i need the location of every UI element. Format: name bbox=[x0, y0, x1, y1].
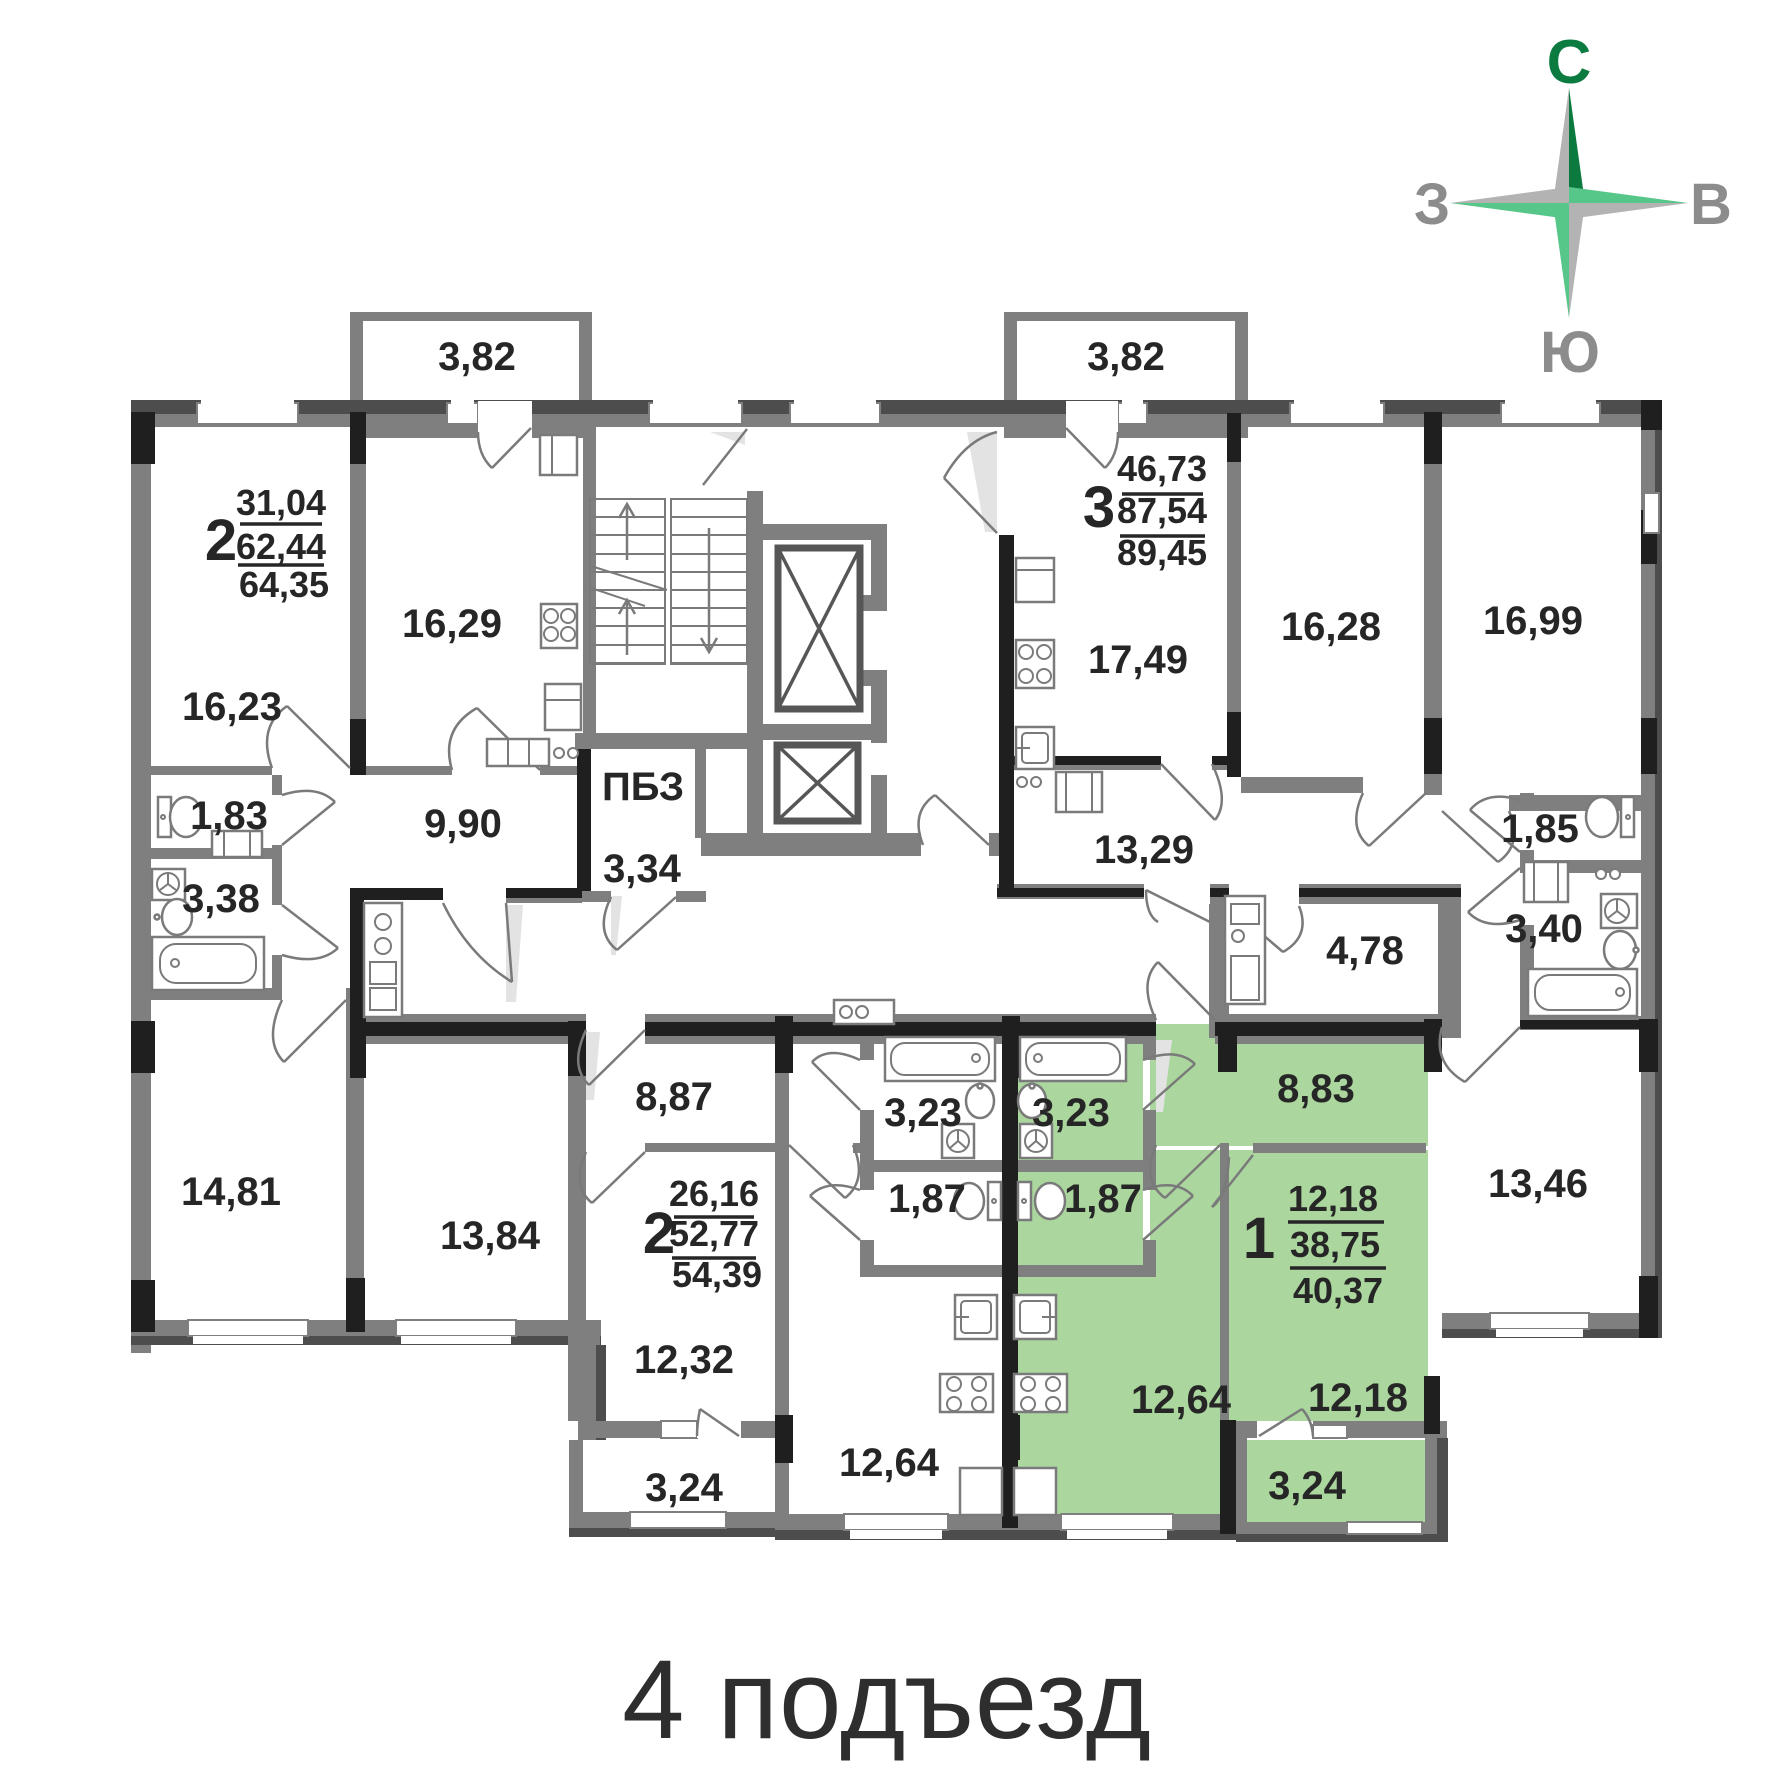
svg-text:46,73: 46,73 bbox=[1117, 448, 1207, 489]
svg-text:13,29: 13,29 bbox=[1094, 828, 1194, 872]
svg-text:13,84: 13,84 bbox=[440, 1214, 541, 1258]
svg-text:12,64: 12,64 bbox=[1131, 1378, 1232, 1422]
svg-text:8,87: 8,87 bbox=[635, 1075, 713, 1119]
svg-text:13,46: 13,46 bbox=[1488, 1162, 1588, 1206]
svg-text:1,87: 1,87 bbox=[888, 1177, 966, 1221]
svg-text:89,45: 89,45 bbox=[1117, 532, 1207, 573]
svg-text:3,24: 3,24 bbox=[1268, 1464, 1347, 1508]
svg-text:12,18: 12,18 bbox=[1308, 1376, 1408, 1420]
svg-text:З: З bbox=[1414, 172, 1450, 237]
svg-text:Ю: Ю bbox=[1540, 320, 1600, 385]
svg-text:26,16: 26,16 bbox=[669, 1173, 759, 1214]
svg-text:9,90: 9,90 bbox=[424, 802, 502, 846]
svg-text:12,18: 12,18 bbox=[1288, 1178, 1378, 1219]
svg-text:17,49: 17,49 bbox=[1088, 638, 1188, 682]
svg-text:54,39: 54,39 bbox=[672, 1254, 762, 1295]
svg-text:31,04: 31,04 bbox=[236, 482, 326, 523]
svg-text:В: В bbox=[1690, 172, 1732, 237]
svg-text:С: С bbox=[1547, 28, 1592, 97]
svg-text:1,85: 1,85 bbox=[1501, 807, 1579, 851]
svg-text:4,78: 4,78 bbox=[1326, 929, 1404, 973]
svg-text:2: 2 bbox=[205, 508, 237, 573]
svg-text:40,37: 40,37 bbox=[1293, 1270, 1383, 1311]
svg-text:16,23: 16,23 bbox=[182, 685, 282, 729]
svg-text:12,32: 12,32 bbox=[634, 1338, 734, 1382]
svg-text:64,35: 64,35 bbox=[239, 564, 329, 605]
svg-text:1: 1 bbox=[1243, 1206, 1275, 1271]
svg-text:87,54: 87,54 bbox=[1117, 490, 1207, 531]
svg-text:ПБЗ: ПБЗ bbox=[602, 765, 684, 809]
svg-text:3,23: 3,23 bbox=[1032, 1091, 1110, 1135]
svg-text:1,87: 1,87 bbox=[1064, 1177, 1142, 1221]
svg-text:52,77: 52,77 bbox=[669, 1213, 759, 1254]
svg-text:3,82: 3,82 bbox=[1087, 335, 1165, 379]
svg-text:16,99: 16,99 bbox=[1483, 599, 1583, 643]
svg-text:16,28: 16,28 bbox=[1281, 605, 1381, 649]
svg-text:3,40: 3,40 bbox=[1505, 907, 1583, 951]
svg-text:14,81: 14,81 bbox=[181, 1170, 281, 1214]
svg-text:3: 3 bbox=[1083, 475, 1115, 540]
svg-text:3,34: 3,34 bbox=[603, 847, 682, 891]
svg-text:62,44: 62,44 bbox=[236, 526, 326, 567]
svg-text:1,83: 1,83 bbox=[190, 794, 268, 838]
svg-text:3,38: 3,38 bbox=[182, 877, 260, 921]
svg-text:3,24: 3,24 bbox=[645, 1466, 724, 1510]
svg-text:3,23: 3,23 bbox=[884, 1091, 962, 1135]
svg-text:4 подъезд: 4 подъезд bbox=[622, 1637, 1152, 1762]
svg-text:3,82: 3,82 bbox=[438, 335, 516, 379]
svg-text:8,83: 8,83 bbox=[1277, 1067, 1355, 1111]
svg-text:16,29: 16,29 bbox=[402, 602, 502, 646]
svg-text:12,64: 12,64 bbox=[839, 1441, 940, 1485]
svg-text:38,75: 38,75 bbox=[1290, 1224, 1380, 1265]
